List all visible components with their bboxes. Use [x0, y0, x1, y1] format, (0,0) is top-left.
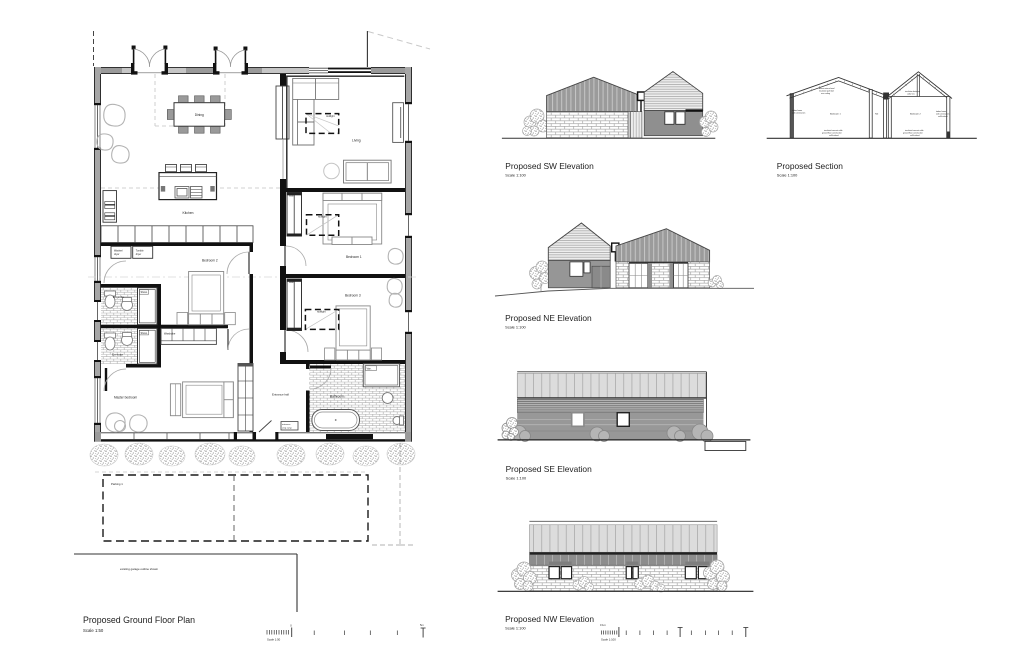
svg-text:rooflight: rooflight: [317, 311, 326, 314]
svg-text:self finished: self finished: [938, 116, 948, 118]
svg-text:ground floor construction: ground floor construction: [903, 132, 923, 135]
svg-text:ground floor construction: ground floor construction: [822, 132, 842, 135]
svg-text:Proposed Section: Proposed Section: [777, 161, 843, 171]
svg-text:Van.: Van.: [367, 366, 372, 370]
svg-text:Scale 1:100: Scale 1:100: [505, 172, 526, 177]
svg-text:Proposed NE Elevation: Proposed NE Elevation: [505, 313, 592, 323]
svg-text:Living: Living: [352, 139, 361, 143]
svg-text:Entrance hall: Entrance hall: [272, 392, 289, 396]
svg-text:dryer: dryer: [136, 253, 142, 256]
svg-text:entrance: entrance: [282, 423, 291, 426]
svg-text:Bedroom 1: Bedroom 1: [830, 113, 841, 116]
svg-text:rooflight: rooflight: [318, 216, 327, 219]
svg-text:wall construction: wall construction: [792, 112, 805, 115]
svg-text:existing garage outline shown: existing garage outline shown: [120, 567, 158, 571]
svg-text:over ceiling: over ceiling: [821, 93, 830, 95]
svg-text:Scale 1:50: Scale 1:50: [83, 628, 104, 633]
svg-text:Ward: Ward: [289, 195, 295, 198]
svg-text:Kitchen: Kitchen: [183, 211, 194, 215]
svg-text:Dining: Dining: [195, 113, 204, 117]
svg-text:rooflight: rooflight: [326, 115, 335, 118]
svg-text:Ward: Ward: [289, 281, 295, 284]
svg-text:step ramp: step ramp: [282, 426, 293, 429]
svg-text:Show.: Show.: [141, 331, 148, 335]
svg-text:Show.: Show.: [141, 290, 148, 294]
svg-text:Bedroom 1: Bedroom 1: [346, 255, 362, 259]
svg-text:Scale 1:100: Scale 1:100: [506, 475, 527, 480]
svg-text:Proposed NW Elevation: Proposed NW Elevation: [505, 614, 594, 624]
svg-text:0 1m: 0 1m: [600, 623, 606, 627]
svg-text:collar ties: collar ties: [907, 92, 915, 95]
svg-text:Proposed SW Elevation: Proposed SW Elevation: [505, 161, 594, 171]
svg-text:Scale 1:100: Scale 1:100: [505, 626, 526, 631]
svg-text:Wardrobe: Wardrobe: [164, 332, 176, 336]
svg-text:dryer: dryer: [114, 253, 120, 256]
svg-text:En-suite: En-suite: [112, 353, 123, 357]
svg-text:Bedroom 2: Bedroom 2: [910, 113, 921, 116]
svg-text:self finished: self finished: [829, 135, 839, 137]
svg-text:self finished: self finished: [910, 135, 920, 137]
svg-text:Proposed Ground Floor Plan: Proposed Ground Floor Plan: [83, 615, 195, 625]
svg-text:Proposed SE Elevation: Proposed SE Elevation: [506, 464, 592, 474]
svg-text:Bedroom 2: Bedroom 2: [202, 259, 218, 263]
svg-text:Scale 1:100: Scale 1:100: [601, 638, 616, 642]
svg-text:Parking 1: Parking 1: [111, 482, 123, 486]
svg-text:En-suite: En-suite: [113, 295, 124, 299]
svg-text:insulated concrete slab: insulated concrete slab: [905, 129, 923, 132]
svg-text:Master bedroom: Master bedroom: [114, 396, 138, 400]
svg-text:insulated concrete slab: insulated concrete slab: [824, 129, 842, 132]
svg-text:Scale 1:100: Scale 1:100: [505, 324, 526, 329]
svg-text:Scale 1:50: Scale 1:50: [267, 638, 281, 642]
svg-text:Bathroom: Bathroom: [330, 395, 344, 399]
svg-text:5m: 5m: [420, 623, 424, 627]
svg-text:Scale 1:100: Scale 1:100: [777, 172, 798, 177]
svg-text:Bedroom 3: Bedroom 3: [345, 294, 361, 298]
